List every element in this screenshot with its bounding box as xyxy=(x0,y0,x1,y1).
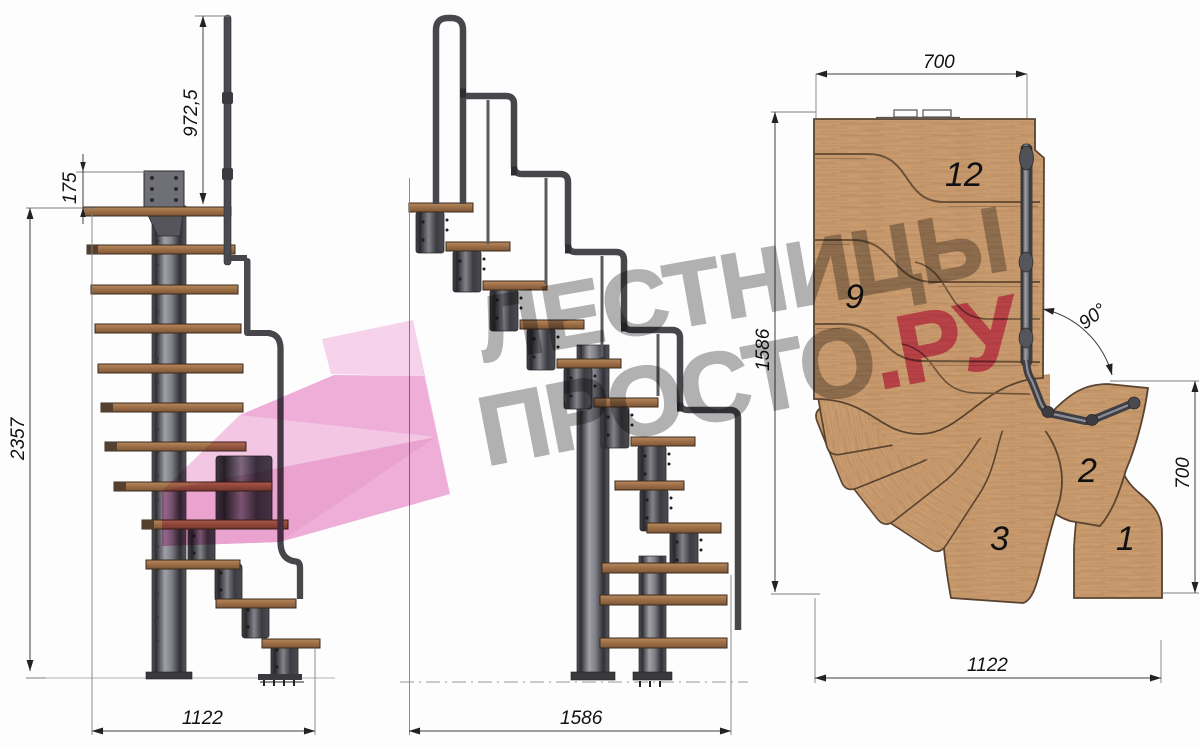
svg-text:2: 2 xyxy=(1077,452,1097,490)
svg-text:12: 12 xyxy=(945,156,983,194)
svg-text:972,5: 972,5 xyxy=(181,89,202,137)
svg-text:2357: 2357 xyxy=(8,416,29,461)
svg-text:700: 700 xyxy=(1173,457,1194,489)
svg-text:1586: 1586 xyxy=(560,708,603,729)
svg-text:1122: 1122 xyxy=(182,708,223,729)
svg-text:3: 3 xyxy=(990,520,1009,558)
svg-text:1122: 1122 xyxy=(967,655,1008,676)
svg-text:175: 175 xyxy=(60,172,81,204)
svg-text:1: 1 xyxy=(1116,520,1135,558)
svg-text:700: 700 xyxy=(923,52,955,73)
